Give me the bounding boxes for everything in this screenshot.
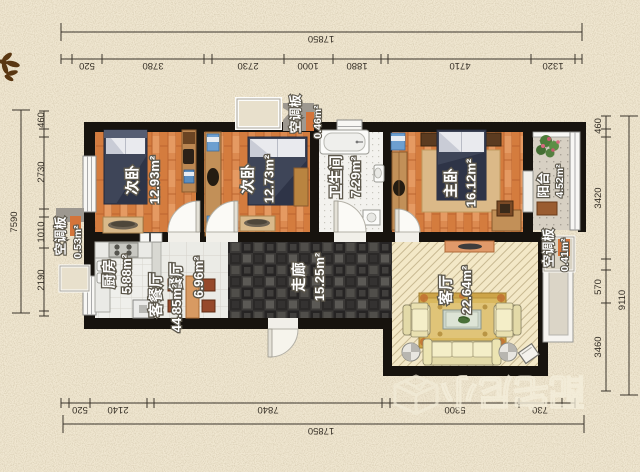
svg-text:9110: 9110 — [617, 290, 628, 310]
svg-text:6.96m²: 6.96m² — [191, 256, 206, 298]
svg-text:12.73m²: 12.73m² — [262, 154, 277, 203]
svg-text:1320: 1320 — [542, 60, 563, 71]
svg-text:15.25m²: 15.25m² — [312, 252, 327, 301]
svg-text:2190: 2190 — [36, 269, 47, 290]
svg-text:1010: 1010 — [36, 221, 47, 242]
svg-text:4.52m²: 4.52m² — [554, 164, 566, 198]
svg-text:12.93m²: 12.93m² — [147, 155, 162, 204]
svg-text:22.64m²: 22.64m² — [459, 265, 474, 314]
svg-text:0.53m²: 0.53m² — [72, 225, 84, 259]
svg-text:17850: 17850 — [308, 425, 334, 436]
svg-text:460: 460 — [593, 118, 604, 134]
svg-text:3420: 3420 — [593, 187, 604, 208]
svg-text:5.88m²: 5.88m² — [120, 254, 134, 294]
svg-text:520: 520 — [72, 404, 88, 415]
svg-text:5300: 5300 — [444, 404, 465, 415]
svg-text:7840: 7840 — [257, 404, 278, 415]
svg-text:4710: 4710 — [449, 60, 470, 71]
svg-text:44.85m²: 44.85m² — [169, 283, 184, 332]
svg-text:0.46m²: 0.46m² — [312, 105, 324, 139]
svg-text:570: 570 — [593, 279, 604, 295]
svg-text:2730: 2730 — [36, 161, 47, 182]
svg-text:1880: 1880 — [346, 60, 367, 71]
svg-text:1000: 1000 — [297, 60, 318, 71]
svg-text:3460: 3460 — [593, 336, 604, 357]
svg-text:0.41m²: 0.41m² — [559, 238, 571, 272]
svg-text:7.29m²: 7.29m² — [348, 156, 363, 198]
svg-text:520: 520 — [79, 60, 95, 71]
svg-text:2140: 2140 — [107, 404, 128, 415]
svg-text:17850: 17850 — [308, 33, 334, 44]
svg-text:3780: 3780 — [142, 60, 163, 71]
svg-text:16.12m²: 16.12m² — [464, 158, 479, 207]
svg-text:7590: 7590 — [9, 211, 20, 232]
svg-text:460: 460 — [36, 112, 47, 128]
svg-text:2730: 2730 — [237, 60, 258, 71]
